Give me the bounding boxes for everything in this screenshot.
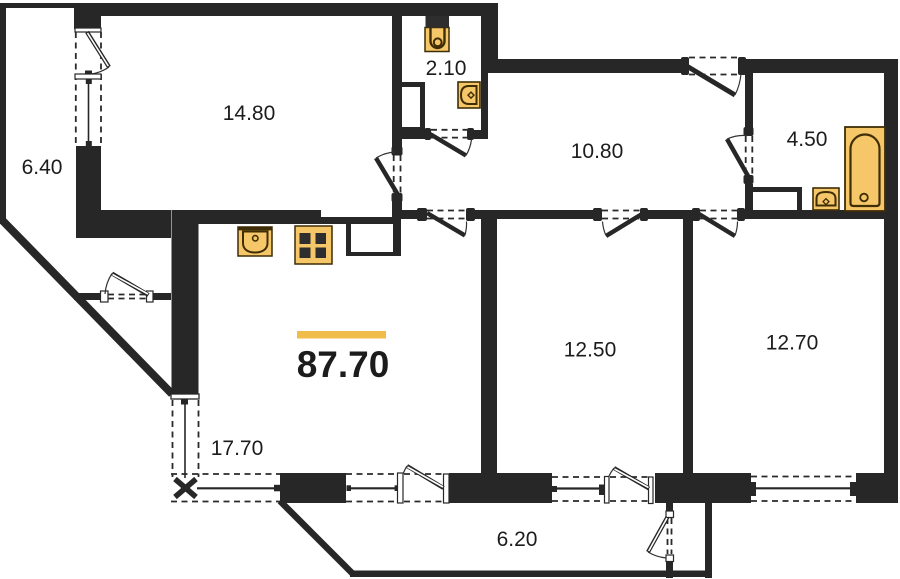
svg-text:10.80: 10.80: [571, 140, 624, 163]
svg-text:87.70: 87.70: [297, 344, 390, 385]
svg-text:6.40: 6.40: [22, 156, 63, 179]
svg-text:12.70: 12.70: [766, 332, 819, 355]
svg-text:2.10: 2.10: [426, 57, 467, 80]
svg-text:14.80: 14.80: [223, 102, 276, 125]
svg-text:4.50: 4.50: [787, 128, 828, 151]
svg-text:17.70: 17.70: [211, 437, 264, 460]
svg-text:6.20: 6.20: [497, 528, 538, 551]
svg-text:12.50: 12.50: [564, 339, 617, 362]
